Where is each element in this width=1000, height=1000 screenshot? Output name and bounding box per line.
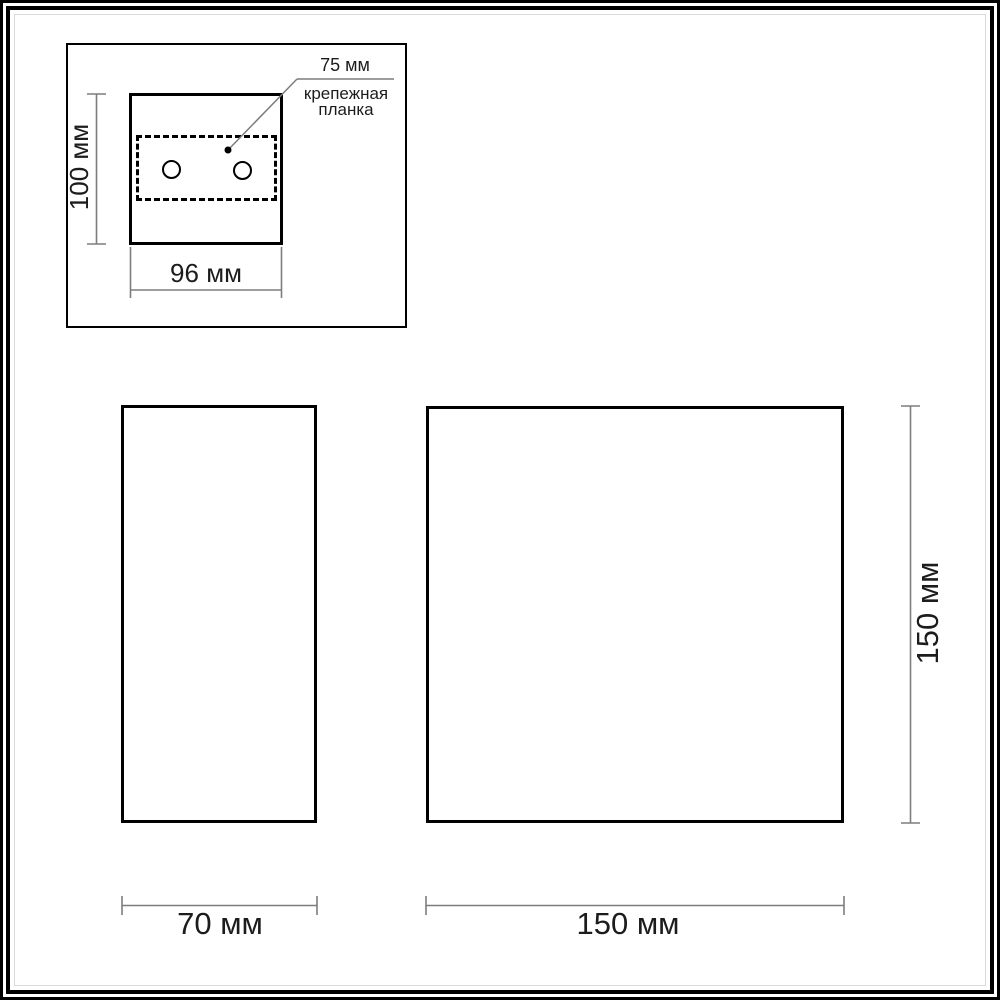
dimension-drawing-page: 75 мм крепежная планка 100 мм 96 мм 70 м… bbox=[0, 0, 1000, 1000]
front-face-width-label: 150 мм bbox=[478, 908, 778, 941]
mounting-hole-right bbox=[233, 161, 252, 180]
side-profile-outline bbox=[121, 405, 317, 823]
front-face-outline bbox=[426, 406, 844, 823]
detail-width-label: 96 мм bbox=[126, 260, 286, 287]
front-face-height-label: 150 мм bbox=[912, 533, 946, 693]
side-profile-width-label: 70 мм bbox=[120, 908, 320, 941]
plate-name-line2: планка bbox=[290, 101, 402, 119]
plate-offset-label: 75 мм bbox=[297, 56, 393, 75]
detail-height-label: 100 мм bbox=[66, 117, 96, 217]
mounting-plate-outline bbox=[136, 135, 277, 201]
mounting-hole-left bbox=[162, 160, 181, 179]
